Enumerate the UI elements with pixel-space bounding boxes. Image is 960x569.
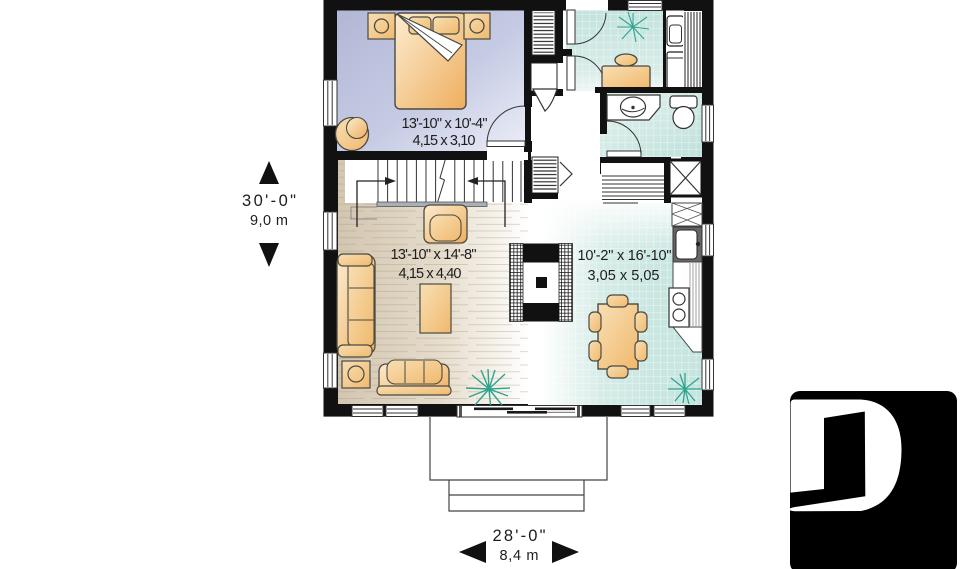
svg-text:9,0 m: 9,0 m xyxy=(250,213,288,229)
svg-text:13'-10" x 14'-8": 13'-10" x 14'-8" xyxy=(391,247,477,263)
svg-text:3,05 x 5,05: 3,05 x 5,05 xyxy=(588,268,660,284)
svg-text:13'-10" x 10'-4": 13'-10" x 10'-4" xyxy=(402,116,488,132)
svg-text:4,15 x 3,10: 4,15 x 3,10 xyxy=(413,133,476,149)
svg-text:10'-2" x 16'-10": 10'-2" x 16'-10" xyxy=(578,248,672,264)
svg-text:8,4 m: 8,4 m xyxy=(500,548,539,564)
svg-text:4,15 x 4,40: 4,15 x 4,40 xyxy=(399,266,462,282)
